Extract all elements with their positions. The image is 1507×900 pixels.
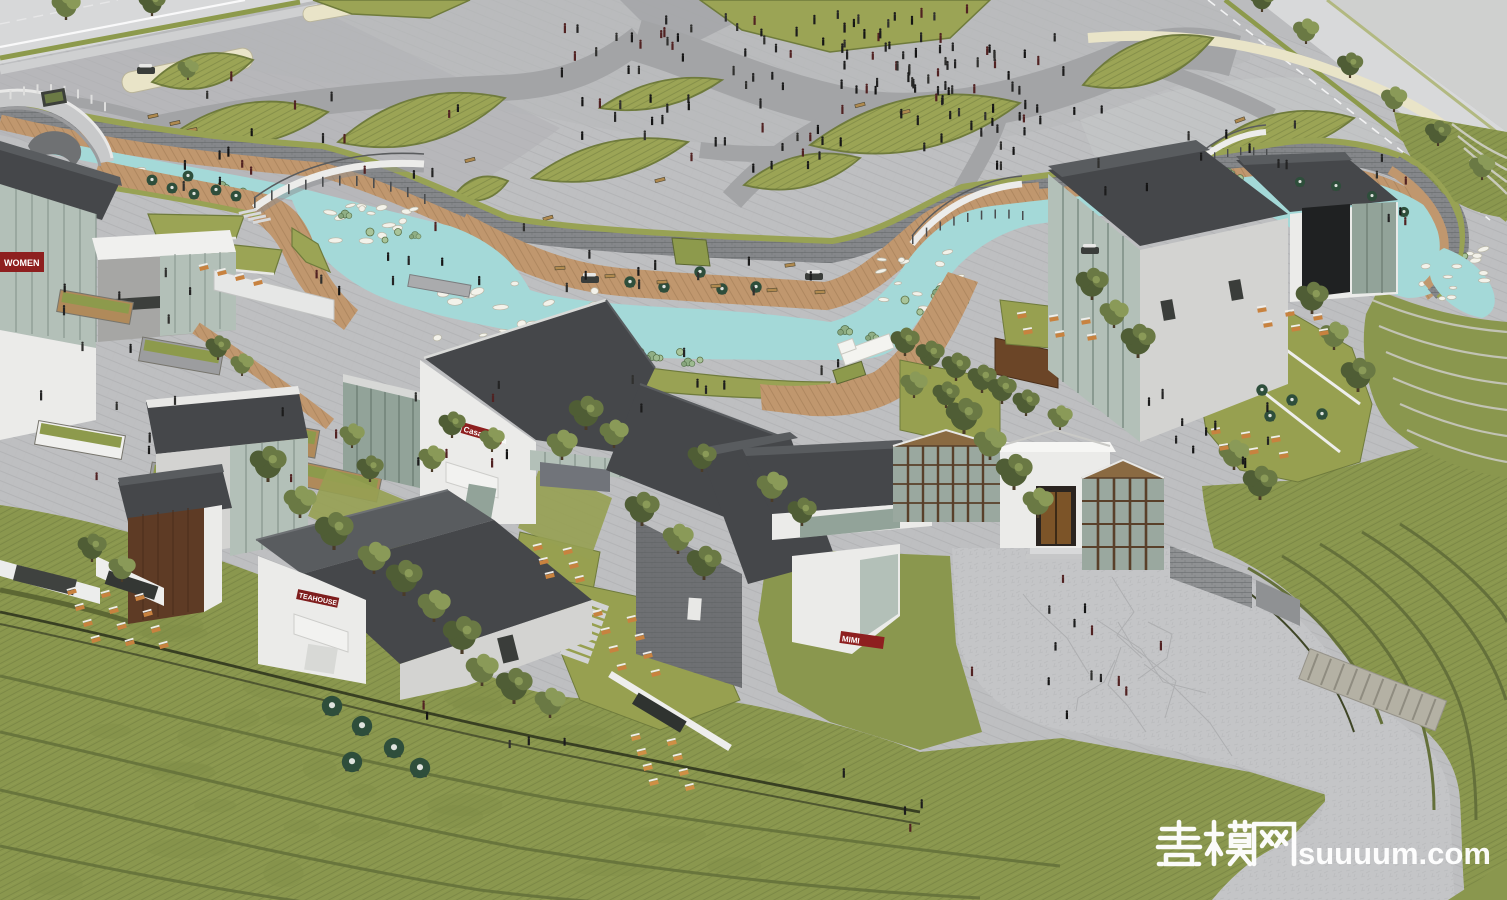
- svg-text:suuuum.com: suuuum.com: [1298, 836, 1491, 871]
- svg-text:WOMEN: WOMEN: [4, 258, 40, 268]
